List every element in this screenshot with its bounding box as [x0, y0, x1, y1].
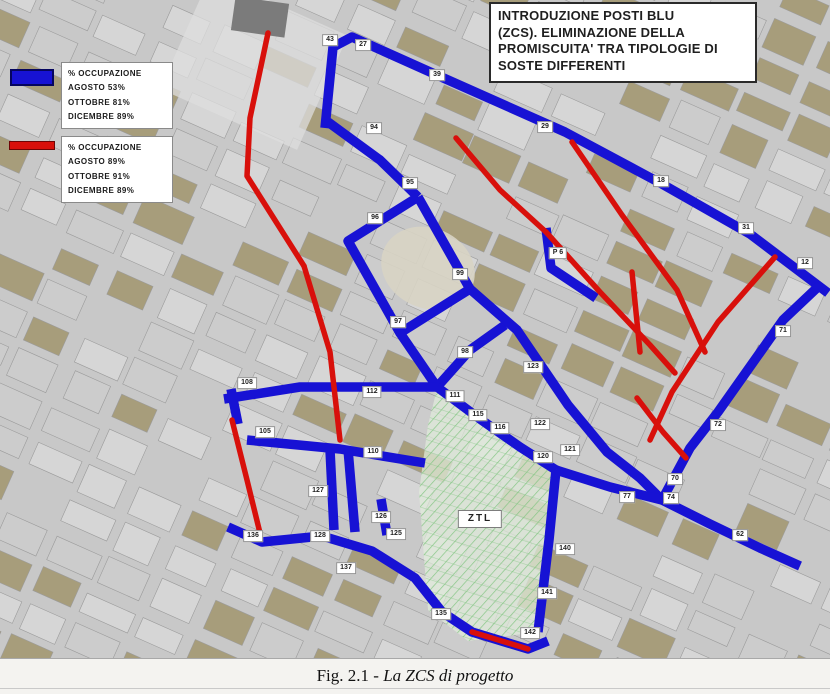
caption-number: Fig. 2.1 -	[317, 666, 384, 685]
zcs-map: % OCCUPAZIONE AGOSTO 53% OTTOBRE 81% DIC…	[0, 0, 830, 658]
caption-title: La ZCS di progetto	[383, 666, 513, 685]
map-canvas	[0, 0, 830, 658]
figure-page: % OCCUPAZIONE AGOSTO 53% OTTOBRE 81% DIC…	[0, 0, 830, 694]
figure-caption: Fig. 2.1 - La ZCS di progetto	[0, 658, 830, 694]
caption-divider	[0, 688, 830, 689]
